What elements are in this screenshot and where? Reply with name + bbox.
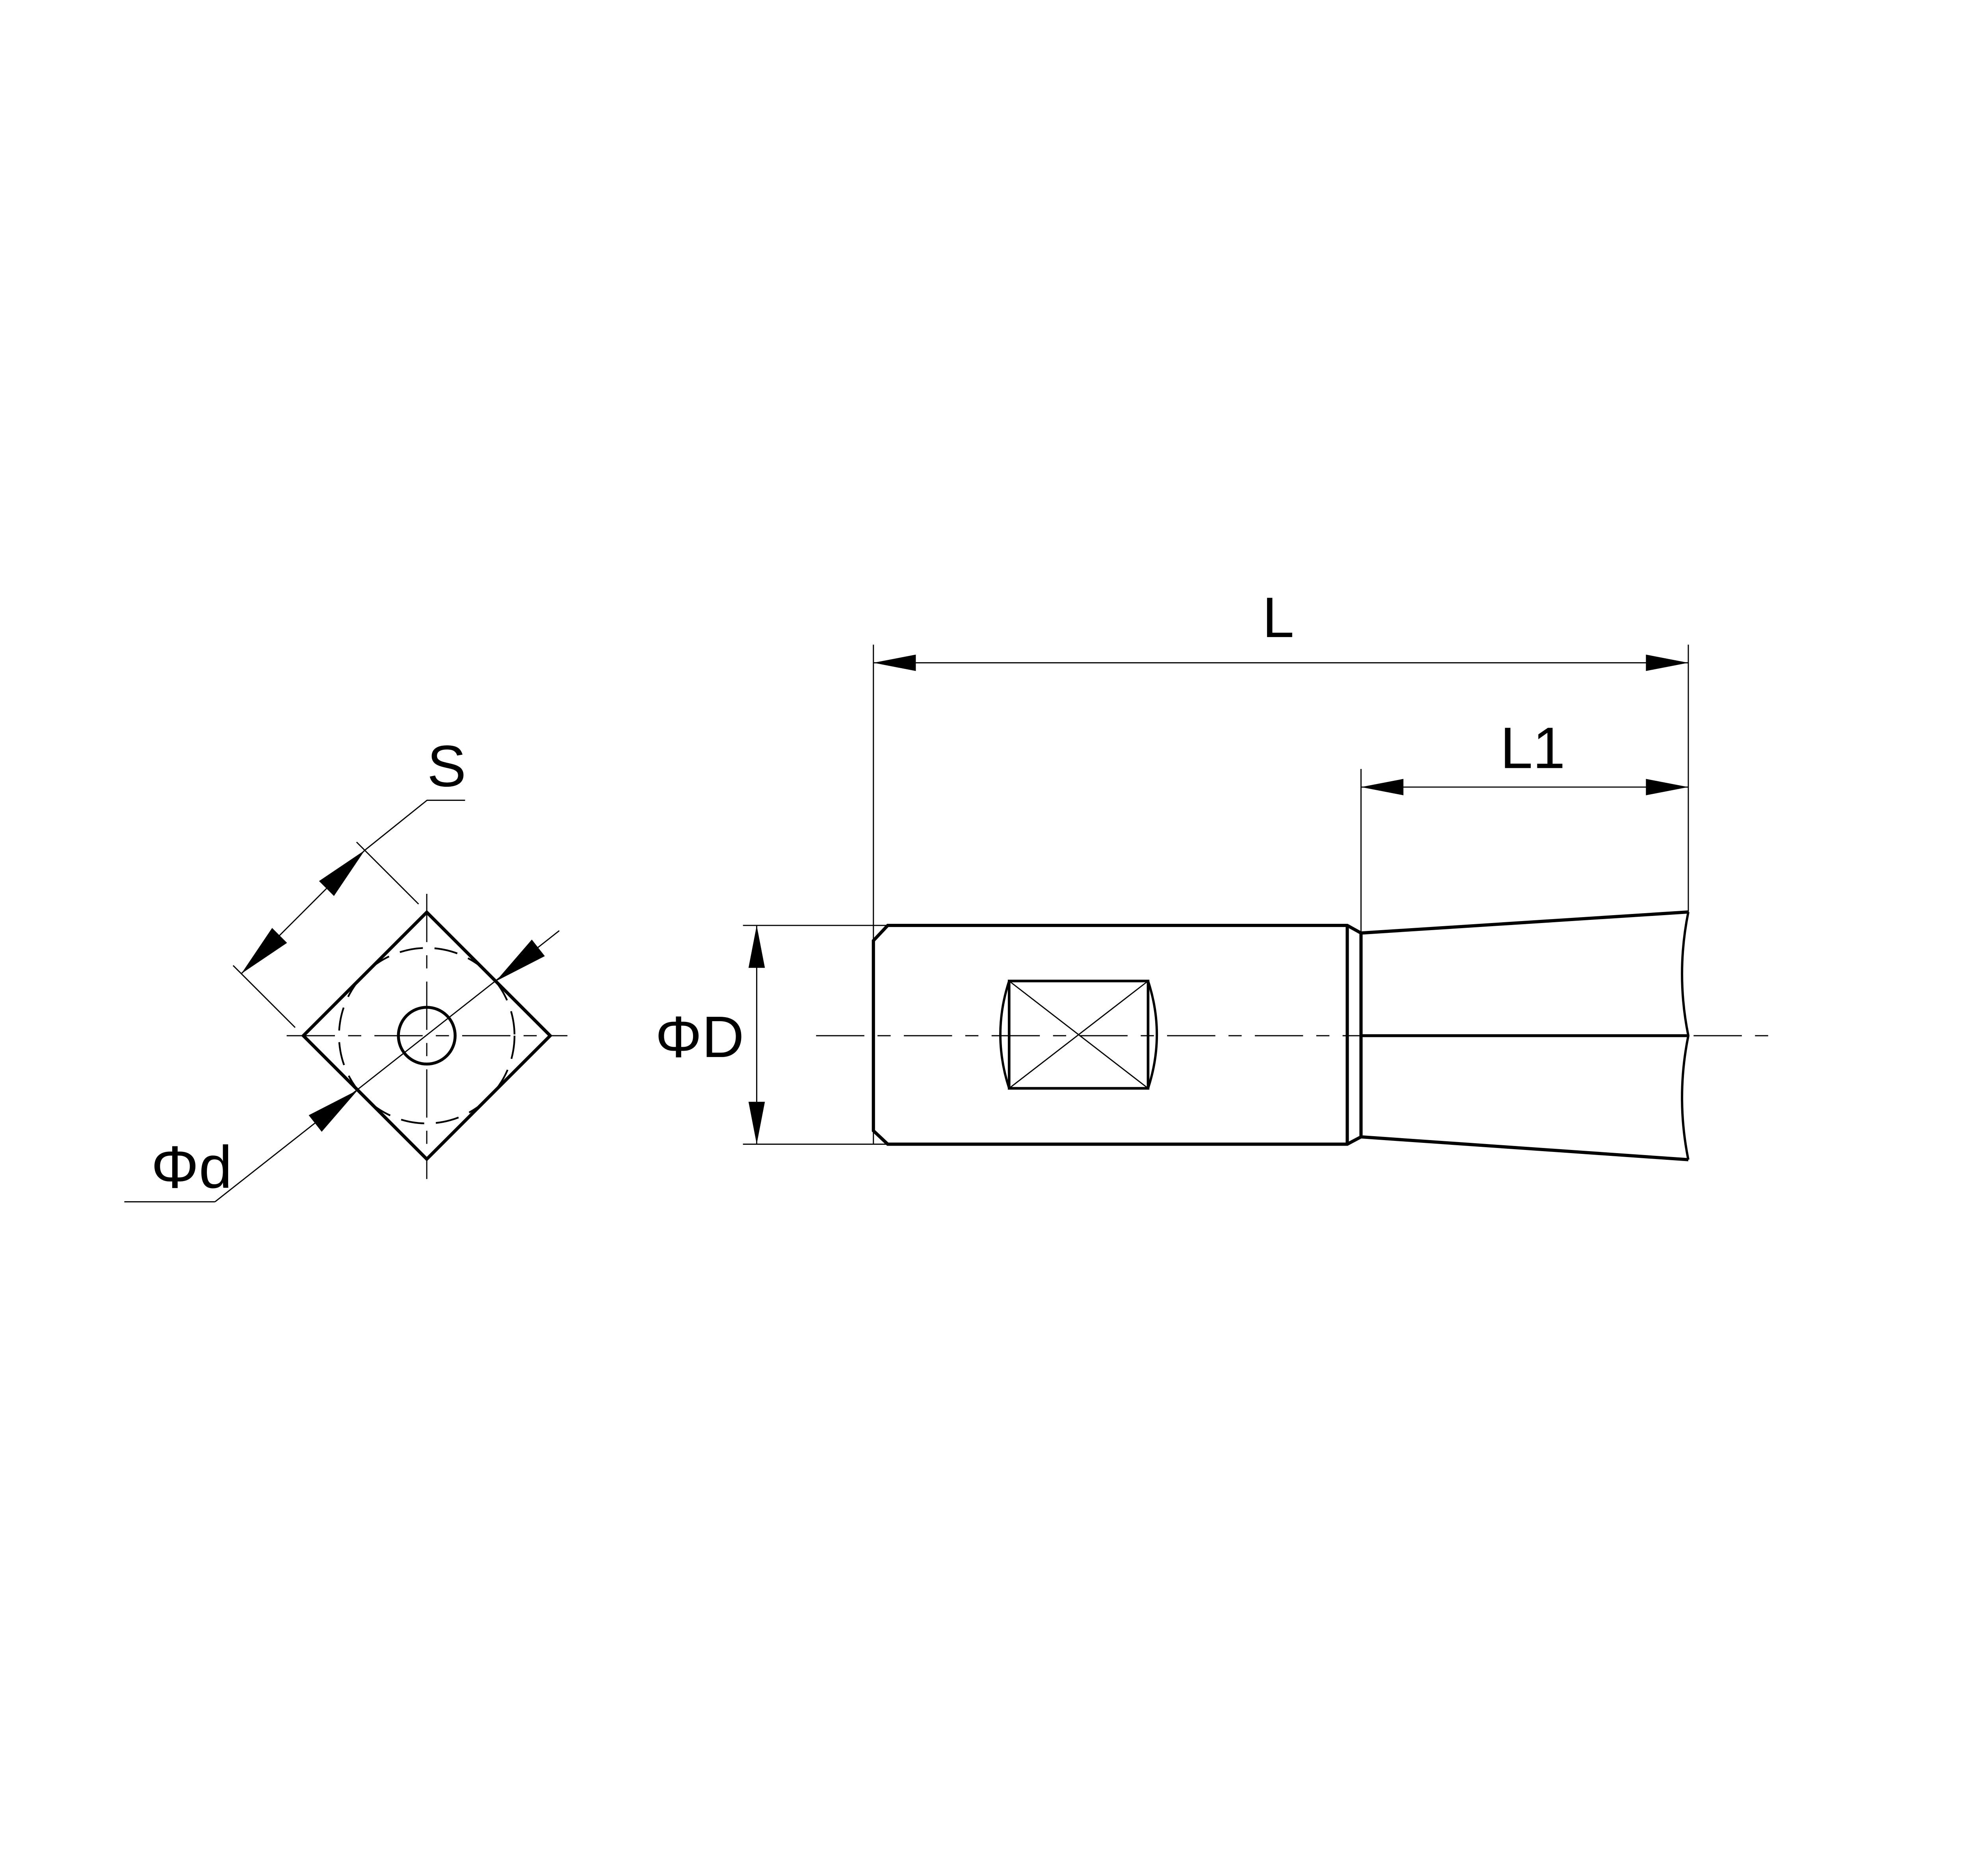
crimp-window-right-arc	[1148, 981, 1157, 1088]
dim-label-s: S	[427, 734, 466, 799]
dim-label-phi-d: Φd	[151, 1134, 232, 1201]
phi-d-arrowhead-lower	[309, 1090, 358, 1132]
l-arrowhead-left	[873, 655, 916, 671]
technical-drawing-page: Φd S L	[0, 0, 1970, 1876]
flare-bottom-line	[1361, 1137, 1688, 1160]
dim-label-l: L	[1262, 585, 1294, 649]
phi-d-arrowhead-upper	[496, 940, 545, 981]
phi-D-arrowhead-bottom	[749, 1102, 765, 1144]
side-view: L L1 ΦD	[655, 585, 1781, 1160]
flare-top-line	[1361, 912, 1688, 933]
l-arrowhead-right	[1646, 655, 1688, 671]
dim-label-l1: L1	[1500, 716, 1565, 781]
s-leader-line	[365, 800, 465, 850]
l1-arrowhead-right	[1646, 779, 1688, 795]
l1-arrowhead-left	[1361, 779, 1403, 795]
phi-D-arrowhead-top	[749, 925, 765, 968]
s-extension-line-top-corner	[357, 842, 418, 904]
lug-technical-drawing: Φd S L	[0, 0, 1970, 1876]
s-extension-line-left-corner	[233, 966, 295, 1027]
barrel-outline	[873, 925, 1361, 1144]
dim-label-phi-D: ΦD	[655, 1005, 744, 1070]
end-view: Φd S	[125, 734, 568, 1202]
